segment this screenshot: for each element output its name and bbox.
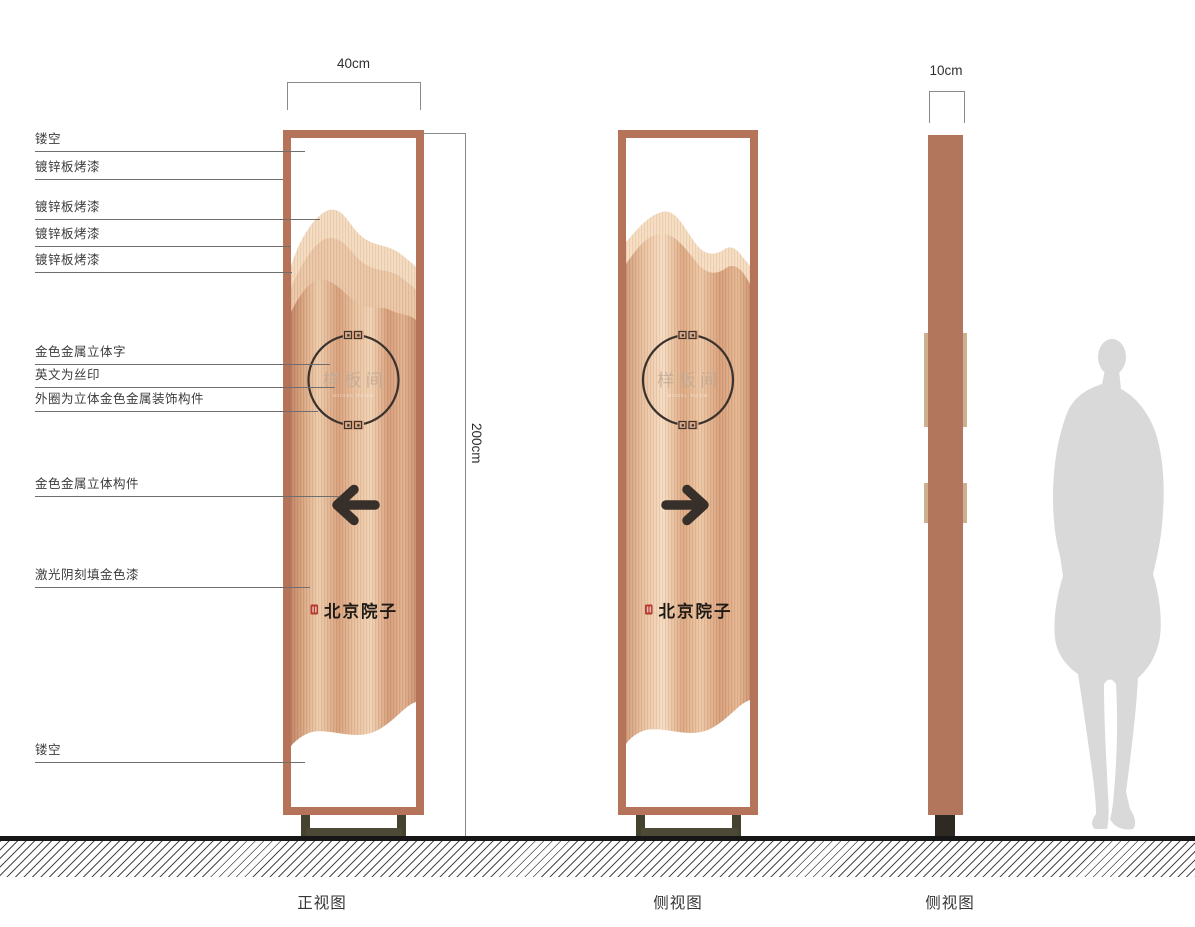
annotation-hollow-bottom: 镂空 [35,742,305,763]
annotation-label: 镀锌板烤漆 [35,253,100,267]
annotation-galvanized-2: 镀锌板烤漆 [35,199,320,220]
annotation-english-silkscreen: 英文为丝印 [35,367,335,388]
brand-name-text: 北京院子 [659,601,733,621]
annotation-hollow-top: 镂空 [35,131,305,152]
dimension-front-width: 40cm [287,56,420,71]
annotation-label: 激光阴刻填金色漆 [35,568,139,582]
caption-middle-view: 侧视图 [618,891,738,913]
annotation-galvanized-4: 镀锌板烤漆 [35,252,292,273]
dimension-connector-200cm [424,133,465,134]
dimension-height: 200cm [469,423,484,464]
annotation-outer-ring: 外圈为立体金色金属装饰构件 [35,391,318,412]
side-profile-column [928,135,963,815]
room-name-text: 样板间 [657,371,722,390]
seal-stamp [311,605,319,615]
signage-design-sheet: 镂空 镀锌板烤漆 镀锌板烤漆 镀锌板烤漆 镀锌板烤漆 金色金属立体字 英文为丝印… [0,0,1195,927]
annotation-galvanized-3: 镀锌板烤漆 [35,226,291,247]
room-name-english-text: MODEL ROOM [333,393,374,398]
annotation-label: 镂空 [35,743,61,757]
brand-calligraphy: 北京院子 [311,601,399,621]
brand-calligraphy: 北京院子 [645,601,733,621]
annotation-label: 镀锌板烤漆 [35,200,100,214]
mountain-graphic [626,198,750,758]
annotation-label: 外圈为立体金色金属装饰构件 [35,392,204,406]
human-silhouette [1042,336,1182,839]
meander-ornament-top [678,331,699,340]
annotation-gold-3d-letters: 金色金属立体字 [35,344,330,365]
middle-sign-artwork: 样板间 MODEL ROOM 北京院子 [626,138,750,807]
side-profile-base [935,815,955,838]
seal-stamp [645,605,653,615]
dimension-side-width: 10cm [911,63,981,78]
annotation-label: 镀锌板烤漆 [35,227,100,241]
meander-ornament-top [343,331,364,340]
side-protrusion-right-lower [963,483,967,523]
annotation-label: 镀锌板烤漆 [35,160,100,174]
front-view-sign: 样板间 MODEL ROOM 北京院子 [283,130,424,815]
annotation-galvanized-1: 镀锌板烤漆 [35,159,283,180]
dimension-line-200cm [465,133,466,836]
annotation-label: 镂空 [35,132,61,146]
caption-right-view: 侧视图 [890,891,1010,913]
meander-ornament-bottom [678,421,699,430]
annotation-label: 英文为丝印 [35,368,100,382]
dimension-bracket-10cm [929,91,965,123]
room-name-english-text: MODEL ROOM [667,393,708,398]
front-sign-artwork: 样板间 MODEL ROOM 北京院子 [291,138,416,807]
annotation-label: 金色金属立体构件 [35,477,139,491]
dimension-bracket-40cm [287,82,421,110]
caption-front-view: 正视图 [262,891,382,913]
annotation-gold-3d-component: 金色金属立体构件 [35,476,340,497]
ground-hatching [0,841,1195,877]
annotation-label: 金色金属立体字 [35,345,126,359]
middle-view-sign: 样板间 MODEL ROOM 北京院子 [618,130,758,815]
annotation-laser-engraving: 激光阴刻填金色漆 [35,567,310,588]
brand-name-text: 北京院子 [324,601,398,621]
side-protrusion-right-upper [963,333,967,427]
meander-ornament-bottom [343,421,364,430]
